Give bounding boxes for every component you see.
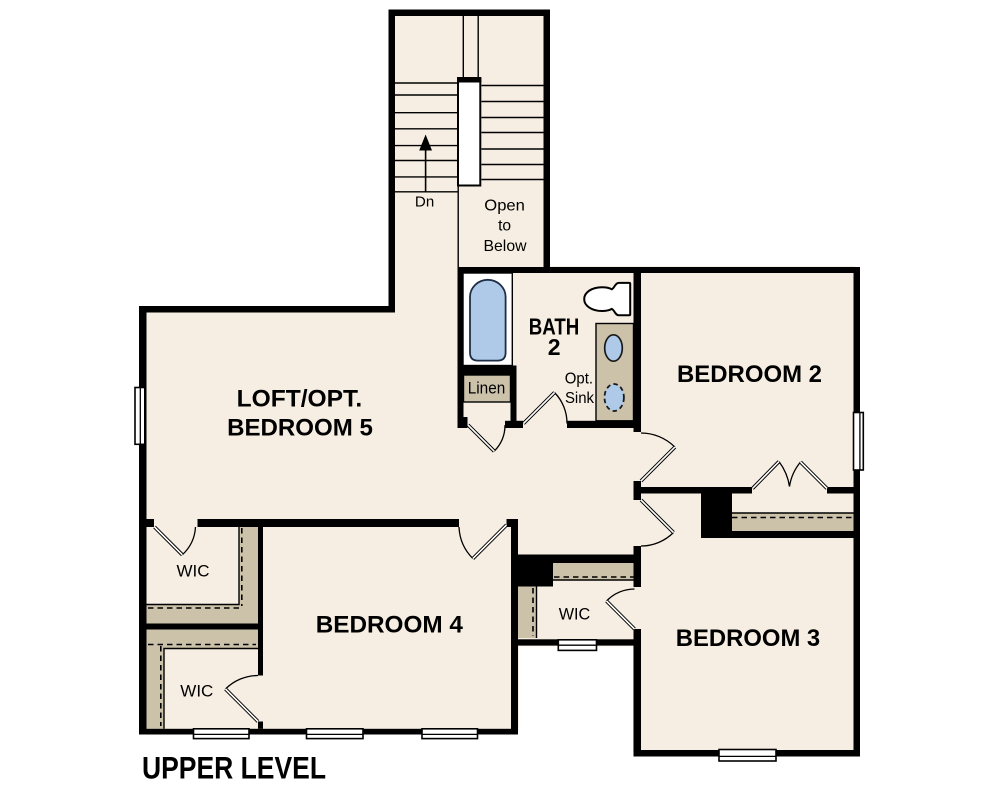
svg-text:BEDROOM 3: BEDROOM 3	[676, 625, 820, 652]
svg-text:WIC: WIC	[180, 682, 213, 701]
svg-text:Open: Open	[484, 198, 525, 215]
svg-text:BEDROOM 4: BEDROOM 4	[316, 612, 464, 639]
svg-text:WIC: WIC	[177, 562, 210, 581]
svg-text:UPPER LEVEL: UPPER LEVEL	[142, 750, 326, 786]
svg-text:Linen: Linen	[468, 379, 506, 398]
svg-text:2: 2	[548, 334, 561, 360]
svg-text:to: to	[498, 218, 511, 235]
svg-text:Dn: Dn	[415, 194, 434, 211]
svg-text:BEDROOM 2: BEDROOM 2	[677, 361, 822, 388]
svg-text:Below: Below	[484, 238, 527, 255]
svg-text:Sink: Sink	[565, 390, 595, 407]
svg-text:Opt.: Opt.	[565, 371, 593, 388]
svg-text:LOFT/OPT.: LOFT/OPT.	[237, 385, 363, 412]
svg-text:WIC: WIC	[559, 605, 591, 624]
svg-text:BEDROOM 5: BEDROOM 5	[227, 415, 373, 442]
